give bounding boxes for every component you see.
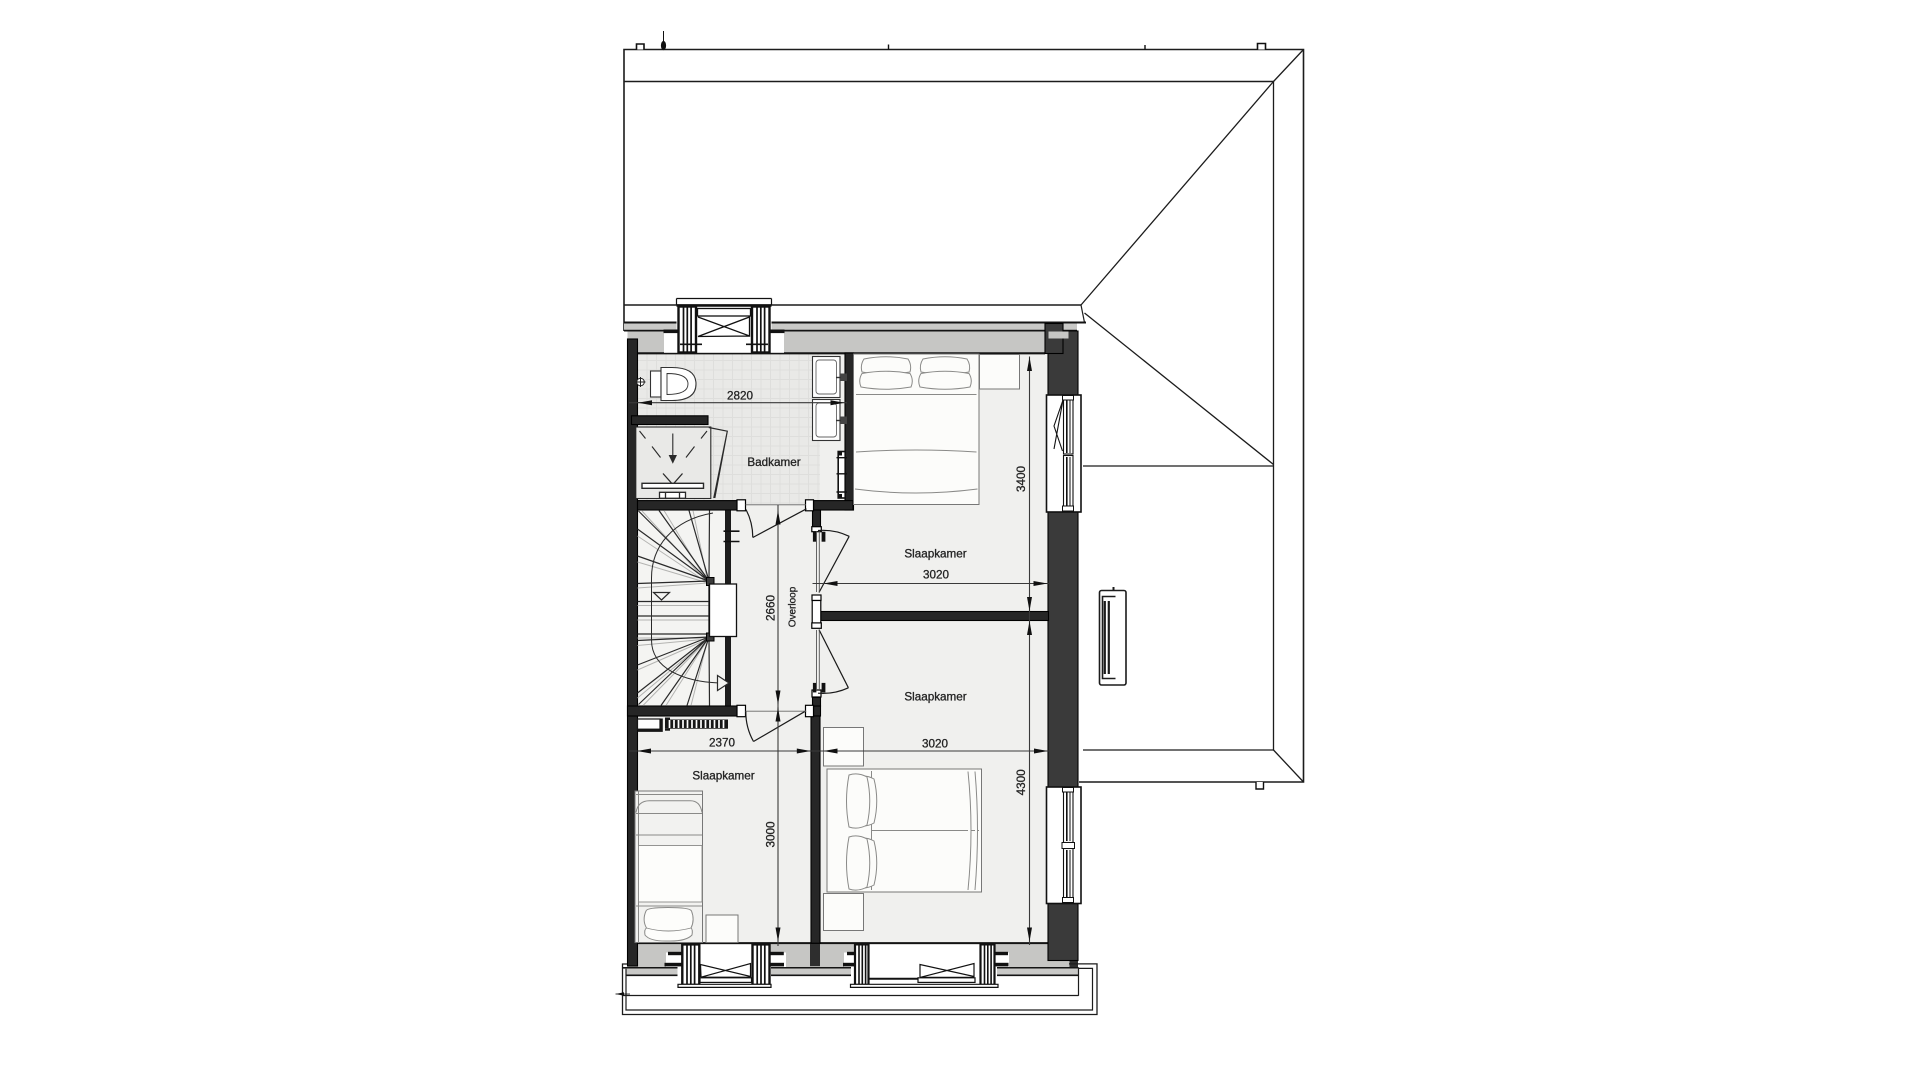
svg-text:2370: 2370 bbox=[709, 737, 736, 750]
svg-text:Slaapkamer: Slaapkamer bbox=[904, 548, 966, 561]
svg-text:Overloop: Overloop bbox=[788, 586, 799, 627]
svg-text:4300: 4300 bbox=[1015, 769, 1028, 796]
svg-text:2820: 2820 bbox=[727, 390, 754, 403]
svg-text:Badkamer: Badkamer bbox=[747, 456, 800, 469]
svg-text:3000: 3000 bbox=[765, 821, 778, 848]
svg-text:3020: 3020 bbox=[922, 738, 949, 751]
svg-text:Slaapkamer: Slaapkamer bbox=[692, 770, 754, 783]
svg-text:2660: 2660 bbox=[765, 595, 778, 622]
svg-text:3020: 3020 bbox=[923, 569, 950, 582]
svg-text:3400: 3400 bbox=[1015, 466, 1028, 493]
svg-text:Slaapkamer: Slaapkamer bbox=[904, 691, 966, 704]
